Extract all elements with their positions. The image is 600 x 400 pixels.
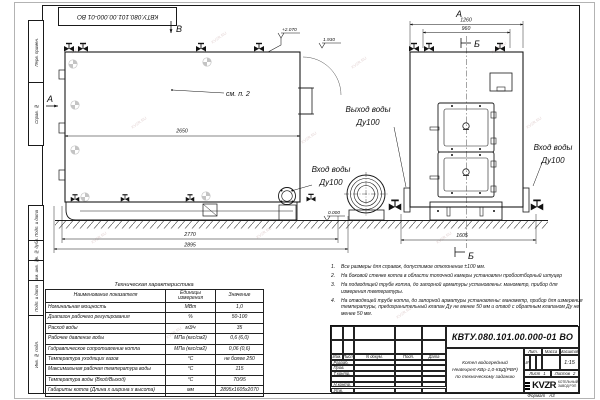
inlet-label-right: Вход воды (534, 143, 573, 152)
col-header: Наименование показателя (46, 290, 166, 303)
logo-sub-line: ЗАВОД РЭП (558, 384, 576, 388)
sheet-cell: Лист 1 (524, 370, 551, 377)
view-label-b: В (176, 24, 182, 34)
boiler-front-view (404, 36, 529, 248)
col-header: Единицы измерения (166, 290, 216, 303)
param-unit: МВт (166, 303, 216, 313)
technical-characteristics: Техническая характеристика Наименование … (45, 282, 263, 397)
ground-hatching (55, 221, 548, 229)
product-line: по техническому заданию (455, 374, 514, 381)
param-unit: °С (166, 375, 216, 385)
note-number: 1. (331, 264, 341, 271)
kvzr-logo-icon (525, 381, 530, 390)
dim-960: 960 (462, 26, 471, 32)
note-number: 2. (331, 273, 341, 280)
note-number: 4. (331, 298, 341, 319)
section-label-b-top: Б (474, 39, 480, 49)
note-item: 4.На отводящей трубе котла, до запорной … (331, 298, 583, 319)
product-line: Котел водогрейный (462, 360, 508, 367)
param-unit: МПа (кгс/см2) (166, 334, 216, 344)
param-value: не более 250 (216, 354, 264, 364)
note-text: На боковой стенке котла в области топочн… (341, 273, 583, 280)
table-row: Диапазон рабочего регулирования%50-100 (46, 313, 264, 323)
table-header-row: Наименование показателя Единицы измерени… (46, 290, 264, 303)
callout-see-note-2: см. п. 2 (226, 91, 250, 98)
outlet-label: Выход воды (346, 105, 391, 114)
sheets-label: Листов (555, 371, 570, 376)
scale-header: Масштаб (560, 348, 579, 355)
param-unit: м3/ч (166, 323, 216, 333)
note-item: 1.Все размеры для справок, допустимое от… (331, 264, 583, 271)
dim-1605: 1605 (456, 233, 468, 239)
param-name: Рабочее давление воды (46, 334, 166, 344)
param-name: Номинальная мощность (46, 303, 166, 313)
inlet-dn-left: Ду100 (318, 178, 343, 187)
inlet-dn-right: Ду100 (540, 156, 565, 165)
mass-value (542, 355, 560, 370)
note-item: 3.На подводящей трубе котла, до запорной… (331, 282, 583, 296)
drawing-sheet: KVZR.RU KVZR.RU KVZR.RU KVZR.RU KVZR.RU … (0, 0, 600, 400)
param-value: 35 (216, 323, 264, 333)
table-row: Габариты котла (Длина х ширина х высота)… (46, 386, 264, 396)
lit-header: Лит. (524, 348, 542, 355)
param-value: 115 (216, 365, 264, 375)
param-name: Расход воды (46, 323, 166, 333)
document-number: КВТУ.080.101.00.000-01 ВО (446, 326, 579, 348)
manufacturer-logo: KVZR КОТЕЛЬНЫЙ ЗАВОД РЭП (524, 377, 579, 393)
product-name: Котел водогрейный Heatexpert-КВр-1,0-КБД… (446, 348, 524, 393)
dim-2650: 2650 (175, 129, 188, 135)
dim-2895: 2895 (183, 243, 196, 249)
param-name: Габариты котла (Длина х ширина х высота) (46, 386, 166, 396)
row-utv: Утв. (331, 388, 354, 394)
product-line: Heatexpert-КВр-1,0-КБД(РВР) (452, 367, 518, 374)
param-value: 70/95 (216, 375, 264, 385)
kvzr-logo-text: KVZR (532, 380, 556, 391)
table-row: Расход водым3/ч35 (46, 323, 264, 333)
format-label: Формат А3 (505, 393, 577, 398)
blower-fan (344, 172, 389, 220)
scale-value: 1:15 (560, 355, 579, 370)
note-text: Все размеры для справок, допустимое откл… (341, 264, 583, 271)
param-unit: МПа (кгс/см2) (166, 344, 216, 354)
section-label-b-bottom: Б (468, 251, 474, 261)
table-row: Номинальная мощностьМВт1,0 (46, 303, 264, 313)
param-name: Максимальная рабочая температура воды (46, 365, 166, 375)
param-name: Диапазон рабочего регулирования (46, 313, 166, 323)
table-row: Рабочее давление водыМПа (кгс/см2)0,6 (6… (46, 334, 264, 344)
param-unit: % (166, 313, 216, 323)
center-marks (69, 58, 211, 201)
lower-door (430, 152, 496, 197)
elev-2070: +2.070 (282, 27, 297, 33)
mass-header: Масса (542, 348, 560, 355)
param-unit: мм (166, 386, 216, 396)
dimensions (54, 21, 536, 253)
param-name: Температура уходящих газов (46, 354, 166, 364)
callout-leader (171, 89, 224, 93)
param-value: 50-100 (216, 313, 264, 323)
note-text: На подводящей трубе котла, до запорной а… (341, 282, 583, 296)
format-word: Формат (527, 393, 545, 398)
param-unit: °С (166, 365, 216, 375)
table-row: Максимальная рабочая температура воды°С1… (46, 365, 264, 375)
param-value: 0,06 (0,6) (216, 344, 264, 354)
note-text: На отводящей трубе котла, до запорной ар… (341, 298, 583, 319)
sheets-value: 2 (573, 371, 575, 376)
sheet-label: Лист (529, 371, 540, 376)
view-label-a-left: А (46, 94, 53, 104)
table-row: Температура уходящих газов°Сне более 250 (46, 354, 264, 364)
param-value: 2895х1605х2070 (216, 386, 264, 396)
table-title: Техническая характеристика (45, 282, 263, 288)
side-inlet-flange (279, 188, 297, 221)
sheets-cell: Листов 2 (551, 370, 579, 377)
view-label-a-front: А (455, 9, 462, 19)
param-name: Гидравлическое сопротивление котла (46, 344, 166, 354)
note-item: 2.На боковой стенке котла в области топо… (331, 273, 583, 280)
col-header: Значение (216, 290, 264, 303)
sheet-value: 1 (543, 371, 545, 376)
table-row: Гидравлическое сопротивление котлаМПа (к… (46, 344, 264, 354)
kvzr-logo-subtext: КОТЕЛЬНЫЙ ЗАВОД РЭП (558, 381, 578, 389)
elev-1930: 1.930 (323, 37, 335, 43)
note-number: 3. (331, 282, 341, 296)
upper-door (430, 103, 496, 152)
param-unit: °С (166, 354, 216, 364)
outlet-dn: Ду100 (355, 118, 380, 127)
table-row: Температура воды (Вход/Выход)°С70/95 (46, 375, 264, 385)
inlet-label-left: Вход воды (312, 165, 351, 174)
title-block: Изм. Лист N докум. Подп. Дата Разраб. Пр… (330, 325, 578, 392)
front-skid (430, 202, 502, 220)
dim-2770: 2770 (183, 232, 196, 238)
param-value: 0,6 (6,0) (216, 334, 264, 344)
param-name: Температура воды (Вход/Выход) (46, 375, 166, 385)
elev-0000: 0.000 (328, 210, 340, 216)
tech-table: Наименование показателя Единицы измерени… (45, 289, 264, 397)
param-value: 1,0 (216, 303, 264, 313)
format-value: А3 (549, 393, 555, 398)
valves (64, 44, 543, 211)
notes-list: 1.Все размеры для справок, допустимое от… (331, 264, 583, 320)
